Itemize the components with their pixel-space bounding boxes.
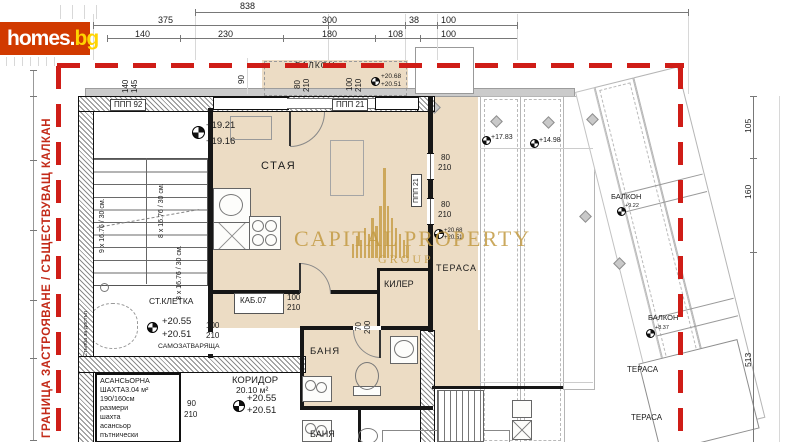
lvl-1783: +17.83 (491, 134, 513, 141)
lvl-marker-balkon-top (371, 77, 380, 86)
dim-ext (688, 14, 689, 94)
label-terasa-r2: ТЕРАСА (631, 414, 662, 422)
lvl-1916: +19.16 (206, 137, 235, 147)
dim-180: 180 (322, 30, 337, 39)
boundary-line-left (56, 66, 61, 442)
dim-145-v: 145 (131, 80, 139, 93)
dim-100-kab: 100 (287, 294, 300, 302)
dim-line (195, 12, 689, 13)
dim-105-v: 105 (744, 119, 753, 133)
lvl-marker-balkon-r2 (646, 329, 655, 338)
lower-box-x (512, 420, 532, 440)
watermark-word-capital: CAPITAL (294, 226, 399, 252)
tiny-mark (22, 57, 23, 66)
bath-sink-bowl (394, 340, 414, 358)
dim-80-w2: 80 (441, 201, 450, 209)
tiny-mark (54, 57, 55, 66)
lvl-2051-kor: +20.51 (247, 406, 276, 416)
vanity-bowl (305, 380, 316, 391)
dim-tick (405, 22, 406, 29)
tiny-mark (60, 5, 61, 19)
dim-tick (107, 35, 108, 42)
stair-8x-a: 8 x 16.76 / 30 см. (158, 183, 165, 238)
dim-tick (195, 9, 196, 16)
label-balkon-r2: БАЛКОН (648, 314, 678, 322)
dim-230: 230 (218, 30, 233, 39)
logo-text: homes. (7, 27, 75, 51)
lvl-marker-stairs (192, 126, 205, 139)
lift-line-3: 190/160см (100, 395, 135, 402)
lvl-922: +9.22 (625, 204, 639, 210)
duct-box (415, 47, 474, 94)
wall-segment (375, 97, 419, 110)
adjacent-room-2-inner (524, 99, 561, 441)
dim-ext (437, 14, 438, 60)
wall-segment (213, 97, 289, 110)
stove-burner (265, 234, 277, 246)
lift-line-7: пътнически (100, 431, 138, 438)
window-terrace-2 (427, 198, 434, 225)
logo-tld: bg (75, 27, 99, 51)
stove-burner (252, 234, 264, 246)
dim-80-w1: 80 (441, 154, 450, 162)
stair-8x-b: 8 x 16.76 / 30 см. (176, 245, 183, 300)
watermark-word-property: PROPERTY (404, 226, 531, 252)
dim-tick (375, 35, 376, 42)
label-terasa-r1: ТЕРАСА (627, 366, 658, 374)
tiny-mark (96, 5, 97, 19)
dim-140: 140 (135, 30, 150, 39)
dim-160-v: 160 (744, 185, 753, 199)
label-stalba: Стълба за достъп (84, 311, 90, 357)
dim-line (93, 25, 517, 26)
terrace-stair (437, 390, 484, 442)
vanity-bowl (316, 382, 327, 393)
lvl-marker-1783 (482, 136, 491, 145)
label-kab07: КАБ.07 (240, 297, 266, 305)
door-leaf-balcony (289, 112, 291, 146)
lvl-1921: +19.21 (206, 121, 235, 131)
lvl-2068-top: +20.68 (381, 74, 401, 81)
dim-ext (517, 14, 518, 60)
label-stkletka: СТ.КЛЕТКА (149, 297, 193, 306)
label-banya: БАНЯ (310, 347, 340, 357)
dim-tick (30, 358, 37, 359)
tiny-mark (30, 57, 31, 66)
toilet (355, 362, 379, 390)
adjacent-divider-1 (480, 148, 593, 149)
wall-kiler-h (377, 268, 433, 271)
lift-line-2: ШАХТА3.04 м² (100, 386, 148, 393)
tiny-mark (6, 57, 7, 66)
lvl-marker-koridor (233, 400, 245, 412)
stair-9x: 9 x 16.76 / 30 см. (99, 198, 106, 253)
dim-100-v: 100 (346, 78, 354, 91)
dim-140-v: 140 (122, 80, 130, 93)
tiny-mark (14, 57, 15, 66)
adjacent-room-1-inner (484, 99, 518, 441)
dim-210-w1: 210 (438, 164, 451, 172)
label-ppp21-v: ППП 21 (411, 174, 422, 207)
lift-line-1: АСАНСЬОРНА (100, 377, 150, 384)
dim-tick (750, 96, 757, 97)
dim-tick (180, 35, 181, 42)
roof-hatch-outline (88, 303, 138, 349)
dim-375: 375 (158, 16, 173, 25)
staircase-rail (146, 158, 147, 284)
wall-banya-bottom (300, 406, 433, 410)
lvl-837: +8.37 (655, 326, 669, 332)
lvl-marker-1498 (530, 139, 539, 148)
lvl-1498: +14.98 (539, 137, 561, 144)
wall-bottom (78, 356, 306, 373)
dim-100-b: 100 (441, 30, 456, 39)
dim-line-right (753, 96, 754, 442)
dim-70-v: 70 (355, 322, 363, 331)
boundary-label: ГРАНИЦА ЗАСТРОЯВАНЕ / СЪЩЕСТВУВАЩ КАЛКАН (41, 118, 53, 438)
label-terasa: ТЕРАСА (436, 264, 477, 273)
dim-513-v: 513 (744, 353, 753, 367)
dim-tick (30, 70, 37, 71)
boundary-line-top (57, 63, 684, 68)
dim-tick (30, 440, 37, 441)
lower-box (512, 400, 532, 418)
dim-210-lift: 210 (184, 411, 197, 419)
floor-plan: ГРАНИЦА ЗАСТРОЯВАНЕ / СЪЩЕСТВУВАЩ КАЛКАН… (0, 0, 800, 442)
kitchen-cabinet (213, 222, 251, 250)
wall-entry-b (330, 290, 377, 294)
dim-200-v: 200 (364, 321, 372, 334)
dim-210-kab: 210 (287, 304, 300, 312)
lift-line-5: шахта (100, 413, 121, 420)
dim-90-v: 90 (238, 75, 246, 84)
kitchen-sink (219, 194, 243, 216)
dim-210-v2: 210 (355, 79, 363, 92)
lvl-2055-st: +20.55 (162, 317, 191, 327)
dim-38: 38 (409, 16, 419, 25)
door-leaf-banya (379, 330, 381, 358)
label-staya: СТАЯ (261, 161, 296, 172)
dim-300: 300 (322, 16, 337, 25)
adjacent-divider-2 (480, 382, 593, 383)
watermark-word-group: GROUP (378, 252, 434, 267)
dim-ext (779, 96, 780, 442)
dim-100-a: 100 (441, 16, 456, 25)
dim-210-st: 210 (206, 332, 219, 340)
lower-toilet (358, 428, 378, 442)
dim-tick (420, 35, 421, 42)
dim-80-v: 80 (294, 80, 302, 89)
lvl-2055-kor: +20.55 (247, 394, 276, 404)
dim-tick (30, 230, 37, 231)
dim-tick (30, 300, 37, 301)
wall-left (78, 96, 94, 442)
dim-tick (30, 96, 37, 97)
boundary-line-right (678, 66, 683, 442)
lvl-2051-st: +20.51 (162, 330, 191, 340)
dim-tick (688, 9, 689, 16)
dim-210-w2: 210 (438, 211, 451, 219)
dim-tick (517, 22, 518, 29)
dim-838: 838 (240, 2, 255, 11)
dim-tick (750, 252, 757, 253)
label-ppp92: ППП 92 (110, 99, 146, 111)
label-kiler: КИЛЕР (384, 280, 414, 289)
dim-tick (283, 35, 284, 42)
staircase-start-circle (100, 283, 109, 292)
dim-ext (195, 14, 196, 60)
lvl-marker-balkon-r1 (617, 207, 626, 216)
dim-90-lift: 90 (187, 400, 196, 408)
lvl-2051-top: +20.51 (381, 82, 401, 89)
label-balkon-r1: БАЛКОН (611, 193, 641, 201)
label-ppp21: ППП 21 (332, 99, 368, 111)
dim-tick (437, 22, 438, 29)
dim-tick (750, 158, 757, 159)
wall-terrace-bottom (432, 386, 563, 389)
dim-line-left (33, 70, 34, 440)
tiny-mark (46, 57, 47, 66)
tiny-mark (72, 5, 73, 19)
tiny-mark (84, 5, 85, 19)
stove-burner (252, 220, 264, 232)
homes-bg-logo[interactable]: homes.bg (0, 22, 90, 55)
stove-burner (265, 220, 277, 232)
tiny-mark (38, 57, 39, 66)
label-banya-lower: БАНЯ (310, 430, 335, 439)
dim-100-st: 100 (206, 322, 219, 330)
label-samozat: САМОЗАТВАРЯЩА (158, 344, 220, 351)
lvl-marker-stkletka (147, 322, 158, 333)
wall-kiler-v (377, 270, 380, 328)
lift-line-4: размери (100, 404, 128, 411)
dim-108: 108 (388, 30, 403, 39)
lift-line-6: асансьор (100, 422, 131, 429)
wardrobe (230, 116, 272, 140)
dim-210-v: 210 (303, 79, 311, 92)
dim-ext (405, 14, 406, 60)
dim-tick (30, 160, 37, 161)
window-terrace-1 (427, 153, 434, 180)
door-leaf-entry (299, 263, 301, 293)
